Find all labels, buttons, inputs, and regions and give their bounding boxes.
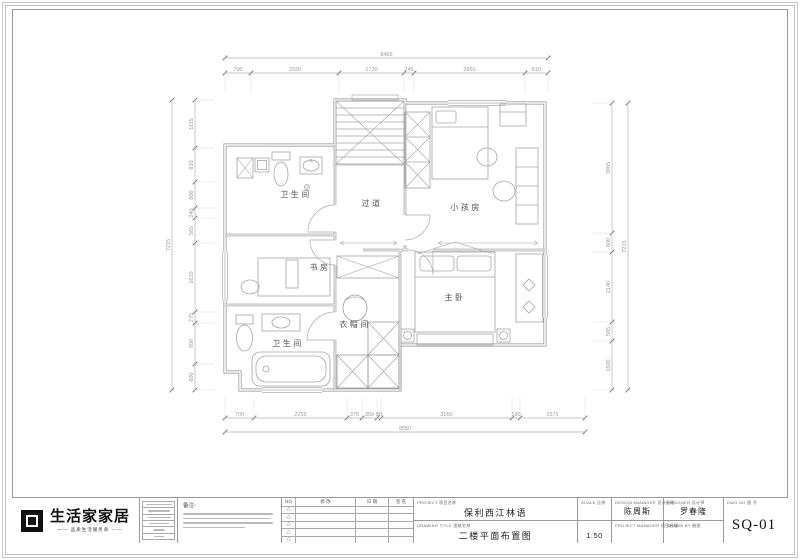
svg-text:2140: 2140 [606, 281, 612, 293]
drawing-number: SQ-01 [724, 508, 784, 543]
revision-triangle-icon: △ [287, 522, 291, 527]
floor-plan-svg: 7002320173024529506108465700225537535080… [0, 0, 800, 560]
svg-text:245: 245 [404, 67, 413, 73]
svg-text:1115: 1115 [189, 118, 195, 129]
svg-text:375: 375 [350, 412, 359, 418]
svg-text:1730: 1730 [365, 67, 377, 73]
svg-text:565: 565 [606, 327, 612, 336]
svg-text:2255: 2255 [294, 412, 306, 418]
company-name: 生活家家居 [50, 509, 130, 525]
svg-text:8465: 8465 [380, 52, 392, 58]
svg-text:700: 700 [233, 67, 242, 73]
stairs-icon [336, 101, 404, 164]
title-block: 生活家家居 —— 品质生活服务商 —— 备注: NO 修 改 日 期 签 名 △… [12, 497, 788, 543]
room-label: 衣帽间 [339, 319, 371, 329]
toilet-icon [274, 162, 288, 186]
bed-icon [432, 107, 488, 179]
lower-bathroom-fixtures [236, 314, 330, 386]
svg-text:600: 600 [606, 238, 612, 247]
svg-text:240: 240 [189, 208, 195, 217]
sink-icon [272, 317, 290, 328]
master-bedroom-furniture [401, 242, 543, 345]
svg-text:1571: 1571 [546, 412, 558, 418]
bench-icon [516, 254, 543, 322]
room-label: 卫生间 [280, 189, 312, 199]
cad-floorplan-sheet: { "logo": { "name": "生活家家居", "tagline": … [0, 0, 800, 560]
room-label: 过道 [362, 198, 383, 208]
opening-arrows [340, 241, 538, 245]
revision-table: NO 修 改 日 期 签 名 △ △ △ △ △ [282, 498, 414, 543]
svg-text:350: 350 [365, 412, 374, 418]
svg-text:950: 950 [189, 339, 195, 348]
svg-text:600: 600 [189, 372, 195, 381]
design-manager-cell: DESIGN MANAGER 设计经理 陈周斯 PROJECT MANAGER … [612, 498, 664, 543]
revision-triangle-icon: △ [287, 507, 291, 512]
cloakroom-furniture [337, 295, 399, 388]
window-icons [221, 95, 549, 394]
revision-triangle-icon: △ [287, 515, 291, 520]
bathtub-icon [252, 352, 330, 386]
logo-square-icon [21, 510, 43, 532]
scale-cell: SCALE 比例 1:50 [578, 498, 612, 543]
svg-text:3965: 3965 [606, 162, 612, 174]
room-label: 书房 [310, 262, 331, 272]
svg-text:9550: 9550 [399, 426, 411, 432]
scale-value: 1:50 [578, 528, 611, 543]
svg-text:190: 190 [511, 412, 520, 418]
design-manager-name: 陈周斯 [612, 504, 663, 519]
svg-text:700: 700 [235, 412, 244, 418]
room-label: 小孩房 [450, 202, 482, 212]
stool-icon [343, 295, 367, 321]
toilet-icon [237, 325, 253, 351]
room-labels: 卫生间过道小孩房书房衣帽间主卧卫生间 [272, 189, 482, 348]
revision-triangle-icon: △ [287, 537, 291, 542]
svg-text:275: 275 [189, 313, 195, 322]
company-tagline: —— 品质生活服务商 —— [57, 527, 122, 533]
svg-text:565: 565 [189, 226, 195, 235]
company-logo: 生活家家居 —— 品质生活服务商 —— [12, 498, 140, 543]
svg-text:7215: 7215 [166, 239, 172, 251]
svg-text:1500: 1500 [606, 359, 612, 371]
notes-label: 备注: [183, 501, 276, 509]
svg-text:2320: 2320 [289, 67, 301, 73]
upper-bathroom-fixtures [237, 152, 322, 190]
chair-icon [241, 280, 259, 294]
company-info-table [140, 498, 178, 543]
wardrobe-icon [405, 112, 430, 188]
revision-triangle-icon: △ [287, 530, 291, 535]
project-cell: PROJECT 项目名称 保利西江林语 DRAWING TITLE 图纸名称 二… [414, 498, 578, 543]
project-manager-name [612, 527, 663, 542]
svg-text:810: 810 [189, 160, 195, 169]
chair-icon [493, 181, 515, 201]
designer-name: 罗春隆 [664, 504, 723, 519]
svg-text:3160: 3160 [440, 412, 452, 418]
svg-text:80: 80 [376, 412, 382, 418]
project-name: 保利西江林语 [414, 505, 577, 520]
chair-icon [477, 148, 497, 166]
svg-text:600: 600 [189, 190, 195, 199]
designer-cell: DESIGNER 设计师 罗春隆 DRAWN BY 制图 [664, 498, 724, 543]
wardrobe-icon [337, 322, 399, 388]
svg-text:610: 610 [532, 67, 541, 73]
drawing-number-cell: DWG NO 图 号 SQ-01 [724, 498, 788, 543]
svg-text:1610: 1610 [189, 271, 195, 283]
drawing-title: 二楼平面布置图 [414, 528, 577, 543]
room-label: 卫生间 [272, 338, 304, 348]
drawn-by-name [664, 527, 723, 542]
study-furniture [241, 256, 399, 296]
notes-cell: 备注: [178, 498, 282, 543]
svg-text:7215: 7215 [622, 240, 628, 252]
svg-text:2950: 2950 [463, 67, 475, 73]
room-label: 主卧 [445, 292, 466, 302]
